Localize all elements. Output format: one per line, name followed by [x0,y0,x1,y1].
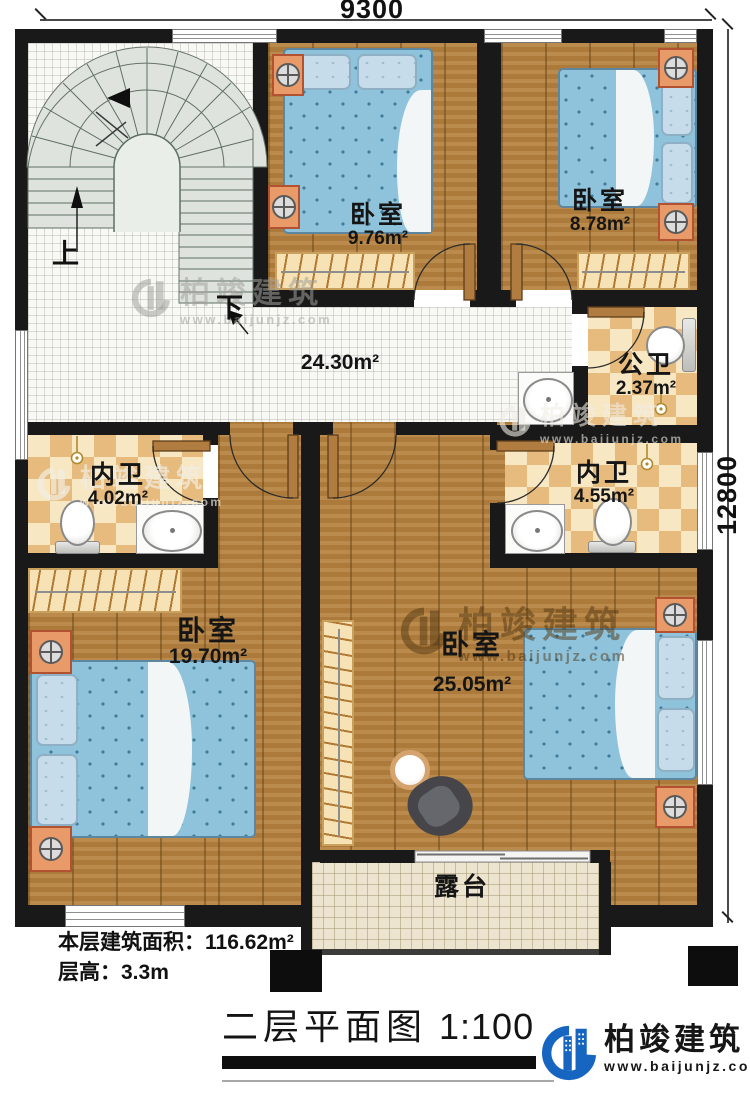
window [15,330,28,460]
nightstand [268,185,300,229]
lamp-icon [664,56,688,80]
window [697,640,713,785]
column-pier [688,946,738,986]
wall [396,422,497,435]
sink [136,504,204,554]
wall [15,553,218,568]
brand-logo-icon [541,1022,597,1084]
wall [301,422,320,862]
wall [610,905,713,927]
floor-stats: 本层建筑面积：116.62m² 层高：3.3m [58,928,294,989]
nightstand [655,597,695,633]
wall [470,290,501,307]
lamp-icon [39,837,63,861]
wall [490,443,505,450]
dimension-width: 9300 [340,0,404,25]
room-label-bedroom-bottom-left: 卧室 19.70m² [169,616,247,669]
wall [477,43,501,307]
bed [523,628,697,780]
nightstand [30,630,72,674]
wall [572,307,588,314]
wall [15,29,713,43]
wall [253,43,268,307]
wall [599,862,611,955]
stair-up-label: 上 [52,232,79,271]
drawing-title: 二层平面图1:100 [222,998,534,1050]
wall [15,422,230,435]
wall [490,425,697,443]
nightstand [272,54,304,96]
room-label-bedroom-top-right: 卧室 8.78m² [570,188,630,236]
nightstand [658,48,694,88]
wardrobe [28,568,182,613]
room-label-ensuite-right: 内卫 4.55m² [574,460,634,508]
title-text: 二层平面图 [222,1006,427,1047]
floor-area-text: 本层建筑面积：116.62m² [58,928,294,958]
sink [505,504,565,554]
wall [301,862,312,955]
wall [203,498,218,553]
window [65,905,185,927]
nightstand [30,826,72,872]
brand-site: www.baijunjz.com [604,1058,750,1074]
dimension-height: 12800 [712,430,743,560]
brand-name: 柏竣建筑 [604,1022,750,1058]
window [664,29,697,43]
brand-logo: 柏竣建筑 www.baijunjz.com [541,1022,750,1084]
stair-room-floor [28,43,253,227]
room-label-terrace: 露台 [434,874,490,901]
lamp-icon [664,210,688,234]
room-label-ensuite-left: 内卫 4.02m² [88,462,148,510]
wall [501,290,516,307]
wall [590,850,610,863]
lamp-icon [276,63,300,87]
stair-down-label: 下 [216,286,243,325]
sink [518,372,574,425]
room-label-bedroom-bottom-right: 卧室 25.05m² [433,630,511,697]
room-label-hall: 24.30m² [301,352,379,375]
wall [490,553,697,568]
wall [572,290,697,307]
wardrobe [275,252,415,290]
wardrobe [322,620,354,846]
wall [253,290,414,307]
window [172,29,277,43]
bed [30,660,256,838]
nightstand [658,203,694,241]
title-scale: 1:100 [439,1006,534,1047]
wall [15,29,28,927]
title-underline [222,1056,536,1069]
room-label-public-bathroom: 公卫 2.37m² [616,352,676,400]
lamp-icon [39,640,63,664]
wall [572,366,588,425]
window [484,29,562,43]
window [697,452,713,550]
lamp-icon [272,195,296,219]
wall [490,503,505,553]
lamp-icon [663,603,687,627]
wardrobe [577,252,690,290]
wall [203,435,218,445]
nightstand [655,786,695,828]
floor-plan: 9300 12800 [0,0,750,1100]
room-label-bedroom-top-middle: 卧室 9.76m² [348,202,408,250]
title-underline-thin [222,1080,554,1082]
lamp-icon [663,795,687,819]
floor-height-text: 层高：3.3m [58,958,294,988]
wall [320,850,415,863]
